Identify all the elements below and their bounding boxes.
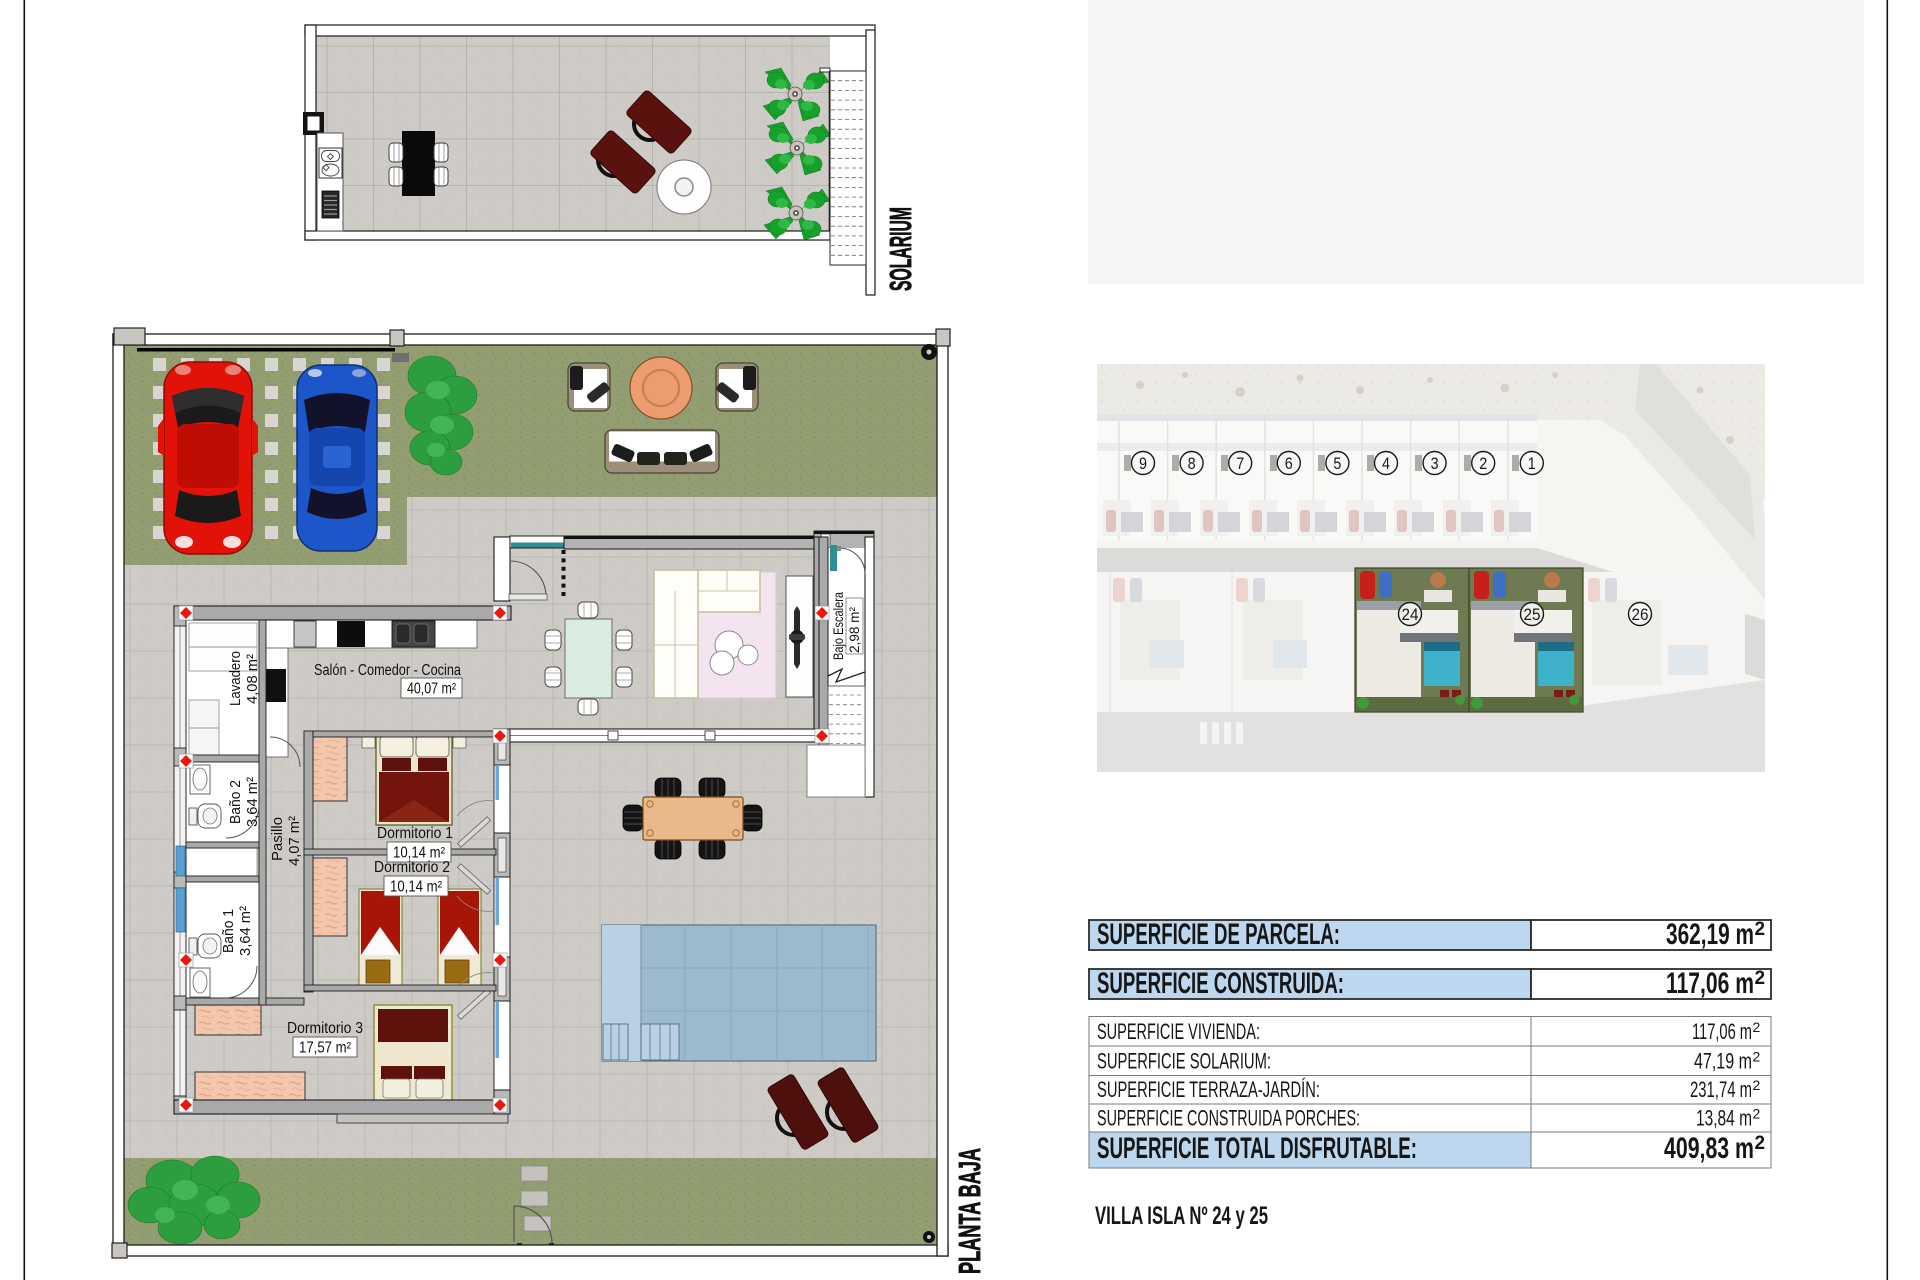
svg-text:SUPERFICIE DE PARCELA:: SUPERFICIE DE PARCELA:	[1097, 918, 1340, 951]
svg-text:4,07 m²: 4,07 m²	[286, 816, 303, 866]
svg-text:Bajo Escalera: Bajo Escalera	[830, 592, 846, 660]
svg-text:40,07 m²: 40,07 m²	[407, 681, 456, 698]
svg-text:2: 2	[1755, 968, 1766, 989]
svg-text:Salón - Comedor - Cocina: Salón - Comedor - Cocina	[314, 662, 461, 679]
svg-text:Dormitorio 3: Dormitorio 3	[287, 1020, 363, 1037]
svg-text:Pasillo: Pasillo	[269, 817, 286, 861]
svg-text:Baño 1: Baño 1	[220, 909, 237, 953]
svg-text:409,83 m: 409,83 m	[1664, 1132, 1754, 1165]
svg-text:Dormitorio 2: Dormitorio 2	[374, 859, 450, 876]
svg-text:3,64 m²: 3,64 m²	[244, 777, 261, 827]
svg-text:4,08 m²: 4,08 m²	[244, 654, 261, 704]
svg-text:2: 2	[1755, 919, 1766, 940]
svg-text:6: 6	[1285, 454, 1293, 473]
svg-text:231,74 m: 231,74 m	[1690, 1077, 1752, 1102]
svg-text:2: 2	[1753, 1049, 1761, 1065]
svg-text:26: 26	[1632, 605, 1649, 624]
svg-text:SUPERFICIE CONSTRUIDA PORCHES:: SUPERFICIE CONSTRUIDA PORCHES:	[1097, 1106, 1360, 1131]
svg-text:362,19 m: 362,19 m	[1666, 918, 1754, 951]
svg-text:SUPERFICIE SOLARIUM:: SUPERFICIE SOLARIUM:	[1097, 1049, 1271, 1074]
svg-text:47,19 m: 47,19 m	[1694, 1049, 1752, 1074]
svg-text:7: 7	[1236, 454, 1244, 473]
svg-text:117,06 m: 117,06 m	[1666, 967, 1754, 1000]
svg-text:Lavadero: Lavadero	[227, 651, 244, 706]
svg-text:8: 8	[1188, 454, 1196, 473]
svg-text:SUPERFICIE CONSTRUIDA:: SUPERFICIE CONSTRUIDA:	[1097, 967, 1344, 1000]
svg-text:2: 2	[1753, 1019, 1761, 1035]
svg-text:2: 2	[1479, 454, 1487, 473]
svg-text:5: 5	[1333, 454, 1341, 473]
svg-text:2,98 m²: 2,98 m²	[846, 607, 862, 653]
svg-text:9: 9	[1139, 454, 1147, 473]
svg-text:SUPERFICIE TOTAL DISFRUTABLE:: SUPERFICIE TOTAL DISFRUTABLE:	[1097, 1132, 1417, 1165]
svg-text:13,84 m: 13,84 m	[1696, 1106, 1752, 1131]
svg-text:2: 2	[1753, 1077, 1761, 1093]
svg-text:PLANTA BAJA: PLANTA BAJA	[952, 1148, 987, 1274]
svg-text:24: 24	[1402, 605, 1419, 624]
svg-text:VILLA ISLA Nº 24 y 25: VILLA ISLA Nº 24 y 25	[1095, 1202, 1268, 1230]
svg-text:SOLARIUM: SOLARIUM	[883, 207, 918, 291]
svg-text:Dormitorio 1: Dormitorio 1	[377, 825, 453, 842]
svg-text:2: 2	[1755, 1133, 1766, 1154]
svg-text:Baño 2: Baño 2	[227, 780, 244, 824]
svg-text:SUPERFICIE TERRAZA-JARDÍN:: SUPERFICIE TERRAZA-JARDÍN:	[1097, 1077, 1320, 1102]
svg-text:1: 1	[1528, 454, 1536, 473]
svg-text:2: 2	[1753, 1106, 1761, 1122]
svg-text:SUPERFICIE VIVIENDA:: SUPERFICIE VIVIENDA:	[1097, 1019, 1260, 1044]
svg-text:117,06 m: 117,06 m	[1692, 1019, 1752, 1044]
svg-text:10,14 m²: 10,14 m²	[390, 879, 442, 896]
svg-text:25: 25	[1524, 605, 1541, 624]
svg-text:17,57 m²: 17,57 m²	[299, 1040, 351, 1057]
svg-text:3,64 m²: 3,64 m²	[237, 906, 254, 956]
svg-text:3: 3	[1431, 454, 1439, 473]
svg-text:4: 4	[1382, 454, 1390, 473]
